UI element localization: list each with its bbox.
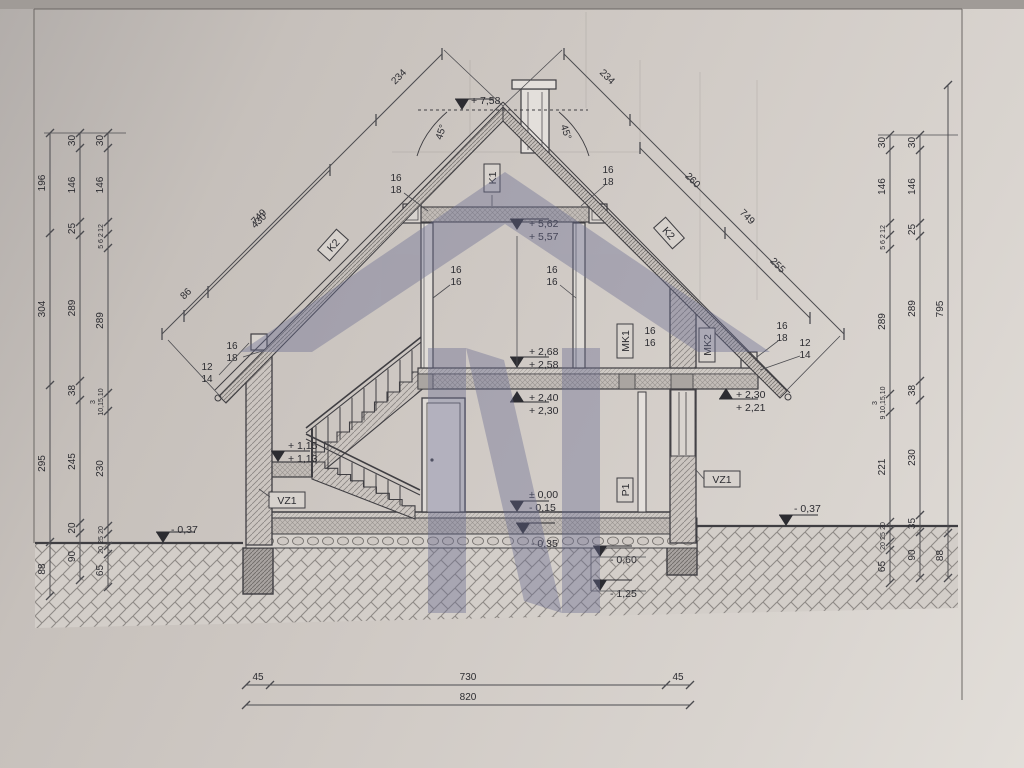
level-label: - 0,37 [794, 503, 821, 515]
dim-label: 730 [460, 672, 477, 683]
dim-label: 30 [907, 137, 918, 149]
section-size-label: 16 [450, 277, 462, 288]
level-label: + 2,58 [529, 359, 559, 371]
level-label: + 2,30 [529, 405, 559, 417]
pebble [383, 537, 394, 545]
level-mark-triangle [455, 99, 469, 110]
partition-p1 [638, 392, 646, 512]
level-label: + 2,68 [529, 346, 559, 358]
dim-label: 289 [67, 299, 78, 316]
level-label: + 2,30 [736, 389, 766, 401]
section-size-label: 16 [602, 165, 614, 176]
pebble [608, 537, 619, 545]
level-label: - 1,25 [610, 588, 637, 600]
dim-label: 295 [37, 455, 48, 472]
annotation-text: 45° [434, 123, 449, 141]
dim-label: 12 [880, 225, 887, 233]
dim-label: 234 [597, 67, 617, 87]
beam-mk1 [619, 374, 635, 389]
boxed-label-vz1: VZ1 [269, 492, 305, 508]
dim-label: 86 [178, 286, 194, 302]
label-text: P1 [620, 483, 632, 496]
dim-label: 304 [37, 300, 48, 317]
pebble [623, 537, 634, 545]
dim-chain-line [564, 54, 844, 334]
pebble [488, 537, 499, 545]
dim-label: 255 [767, 256, 787, 276]
dim-label: 20 [880, 522, 887, 530]
annotation-text: 3 [90, 400, 97, 404]
photo-top-edge [0, 0, 1024, 9]
annotation-text: 45° [558, 123, 573, 141]
dim-label: 221 [877, 458, 888, 475]
eave-fascia-left [215, 395, 221, 401]
level-label: + 7,58 [471, 95, 501, 107]
section-size-label: 18 [226, 353, 238, 364]
pebble [353, 537, 364, 545]
leader-line [696, 470, 704, 479]
dim-label: 25 [67, 223, 78, 235]
dim-label: 45 [672, 672, 684, 683]
boxed-label-k2: K2 [654, 217, 685, 249]
dim-label: 146 [907, 178, 918, 195]
section-size-label: 12 [201, 362, 213, 373]
dim-label: 20 [67, 522, 78, 534]
dim-label: 5 6 2 [98, 233, 105, 249]
boxed-label-p1: P1 [617, 478, 633, 502]
dim-label: 30 [95, 135, 106, 147]
dim-label: 146 [67, 176, 78, 193]
level-mark-triangle [779, 515, 793, 526]
pebble [368, 537, 379, 545]
level-label: - 0,60 [610, 554, 637, 566]
dim-label: 90 [67, 551, 78, 563]
dim-label: 25 [880, 532, 887, 540]
section-size-label: 16 [546, 265, 558, 276]
section-size-label: 16 [546, 277, 558, 288]
chimney-cap [512, 80, 556, 89]
leader-line [787, 336, 840, 390]
level-label: + 2,40 [529, 392, 559, 404]
dim-label: 88 [935, 550, 946, 562]
pebble [338, 537, 349, 545]
dim-label: 749 [737, 207, 757, 227]
ground-floor-slab [246, 512, 697, 548]
section-size-label: 16 [226, 341, 238, 352]
stair-upper-flight [312, 372, 425, 477]
pebble [638, 537, 649, 545]
dim-label: 30 [67, 135, 78, 147]
level-label: - 0,37 [171, 524, 198, 536]
dim-label: 289 [907, 300, 918, 317]
pebble [473, 537, 484, 545]
pebble [413, 537, 424, 545]
dim-label: 90 [907, 549, 918, 561]
boxed-label-k2: K2 [318, 229, 349, 261]
dim-label: 230 [907, 449, 918, 466]
pebble [323, 537, 334, 545]
dim-label: 260 [682, 171, 702, 191]
pebble [293, 537, 304, 545]
dim-label: 30 [877, 137, 888, 149]
section-size-label: 16 [644, 326, 656, 337]
dim-label: 10,15,10 [98, 388, 105, 415]
level-mark-triangle [271, 451, 285, 462]
dim-label: 289 [95, 312, 106, 329]
pebble [278, 537, 289, 545]
dim-label: 795 [935, 300, 946, 317]
dim-label: 20 [98, 526, 105, 534]
dim-label: 5 6 2 [880, 234, 887, 250]
dim-label: 88 [37, 563, 48, 575]
level-label: + 1,13 [288, 453, 318, 465]
dim-label: 820 [460, 692, 477, 703]
dim-label: 65 [877, 561, 888, 573]
wall-right-window [671, 390, 695, 456]
pebble [653, 537, 664, 545]
dim-chain-line [184, 170, 330, 316]
leader-line [760, 356, 800, 370]
drawing-canvas: 19630429588301462528938245209030146125 6… [0, 0, 1024, 768]
dim-label: 25 [98, 536, 105, 544]
dim-label: 20 [880, 542, 887, 550]
beam-mk2 [671, 374, 693, 389]
dim-label: 9 10,15,10 [880, 386, 887, 419]
dim-label: 25 [907, 224, 918, 236]
leader-line [433, 285, 450, 298]
dim-label: 245 [67, 453, 78, 470]
dim-label: 230 [95, 460, 106, 477]
pebble [308, 537, 319, 545]
dim-label: 38 [907, 385, 918, 397]
boxed-label-vz1: VZ1 [704, 471, 740, 487]
wall-left [246, 351, 272, 545]
level-label: + 1,15 [288, 440, 318, 452]
staircase [266, 330, 430, 519]
dim-label: 35 [907, 518, 918, 530]
dim-label: 234 [389, 67, 409, 87]
dim-label: 196 [37, 174, 48, 191]
label-text: VZ1 [277, 495, 296, 507]
section-size-label: 18 [602, 177, 614, 188]
section-size-label: 18 [776, 333, 788, 344]
level-mark-triangle [719, 388, 733, 399]
foundation-left [243, 548, 273, 594]
dim-label: 146 [877, 178, 888, 195]
pebble [398, 537, 409, 545]
dim-label: 38 [67, 385, 78, 397]
dim-label: 20 [98, 546, 105, 554]
dim-label: 289 [877, 313, 888, 330]
label-text: VZ1 [712, 474, 731, 486]
section-size-label: 16 [644, 338, 656, 349]
eave-fascia-right [785, 394, 791, 400]
dim-label: 12 [98, 224, 105, 232]
level-label: + 2,21 [736, 402, 766, 414]
dim-label: 146 [95, 176, 106, 193]
annotation-text: 3 [872, 401, 879, 405]
section-size-label: 16 [390, 173, 402, 184]
section-size-label: 16 [450, 265, 462, 276]
level-mark-triangle [156, 532, 170, 543]
section-size-label: 14 [201, 374, 213, 385]
dim-label: 45 [252, 672, 264, 683]
boxed-label-mk1: MK1 [617, 324, 633, 358]
dim-label: 65 [95, 565, 106, 577]
section-size-label: 14 [799, 350, 811, 361]
architectural-section-drawing: 19630429588301462528938245209030146125 6… [0, 0, 1024, 768]
section-size-label: 16 [776, 321, 788, 332]
section-size-label: 18 [390, 185, 402, 196]
section-size-label: 12 [799, 338, 811, 349]
label-text: MK1 [620, 330, 632, 352]
